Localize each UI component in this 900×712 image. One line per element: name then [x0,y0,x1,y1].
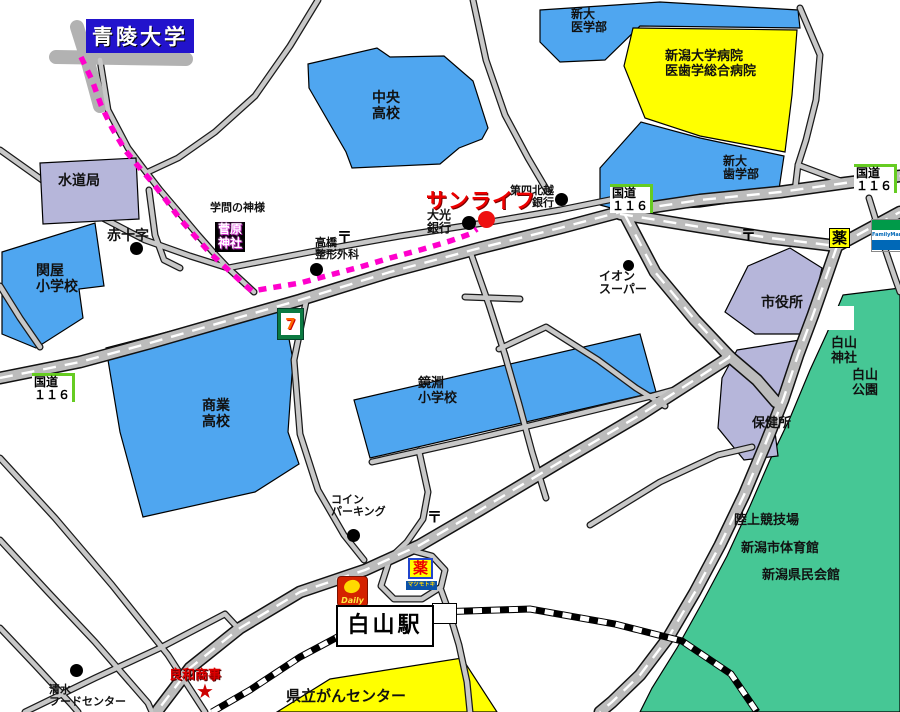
takahashi-seikei-label: 高橋 整形外科 [315,237,359,262]
hokenjo-label: 保健所 [752,417,791,432]
suidokyoku-area [40,158,139,224]
route116-badge-west: 国道 １１６ [32,373,75,402]
suidokyoku-label: 水道局 [58,174,100,190]
chuo-highschool-label: 中央 高校 [372,91,400,122]
red-cross-dot [130,242,143,255]
daily-yamazaki-icon: Daily [337,576,368,607]
shi-taiikukan-label: 新潟市体育館 [741,542,819,557]
gakumon-label: 学問の神様 [210,202,265,214]
post-office-mark-2: 〒 [741,224,756,245]
city-hall-label: 市役所 [761,296,803,312]
shindai-med-label: 新大 医学部 [571,8,607,35]
hakusan-park-label: 白山 公園 [852,369,878,398]
pharmacy-badge-station: 薬 [408,558,433,579]
daishi-hokuetsu-bank-dot [555,193,568,206]
shindai-dental-label: 新大 歯学部 [723,155,759,182]
matsumoto-kiyoshi-sign: マツモトキヨシ [406,581,437,590]
coin-parking-label: コイン パーキング [331,494,386,519]
hakusan-station-box: 白山駅 [336,605,434,647]
route116-badge-center: 国道 １１６ [610,184,653,213]
ryowa-shoji-star: ★ [196,681,214,701]
takahashi-seikei-dot [310,263,323,276]
shogyo-highschool-label: 商業 高校 [202,399,230,430]
aeon-super-dot [623,260,634,271]
kenmin-kaikan-label: 新潟県民会館 [762,569,840,584]
sekiya-elementary-label: 関屋 小学校 [36,264,78,295]
hakusan-shrine-label: 白山 神社 [831,337,857,366]
rikujo-kyogijo-label: 陸上競技場 [734,514,799,529]
aeon-super-label: イオン スーパー [599,270,647,297]
seven-eleven-icon: 7 [277,308,304,340]
kagamibuchi-elementary-label: 鏡淵 小学校 [418,377,457,406]
shimizu-food-dot [70,664,83,677]
route116-badge-east: 国道 １１６ [854,164,897,193]
sunlife-label: サンライフ [426,185,536,215]
daiko-bank-dot [462,216,476,230]
sunlife-location-dot [478,211,495,228]
seiryo-university-badge: 青陵大学 [86,19,194,53]
coin-parking-dot [347,529,360,542]
sugawara-shrine-badge: 菅原 神社 [215,222,245,252]
shimizu-food-label: 清水 フードセンター [49,684,126,709]
daily-logo-egg [343,578,362,595]
railway-station-connector [432,603,457,624]
pharmacy-badge-east: 薬 [829,228,850,248]
post-office-mark-3: 〒 [427,506,442,527]
niigata-univ-hospital-label: 新潟大学病院 医歯学総合病院 [665,50,756,79]
red-cross-label: 赤十字 [107,229,149,245]
familymart-icon: FamilyMart [871,219,900,252]
shrine-grounds [826,306,854,330]
access-map: 青陵大学 菅原 神社 サンライフ 白山駅 国道 １１６ 国道 １１６ 国道 １１… [0,0,900,712]
gan-center-label: 県立がんセンター [286,688,406,705]
